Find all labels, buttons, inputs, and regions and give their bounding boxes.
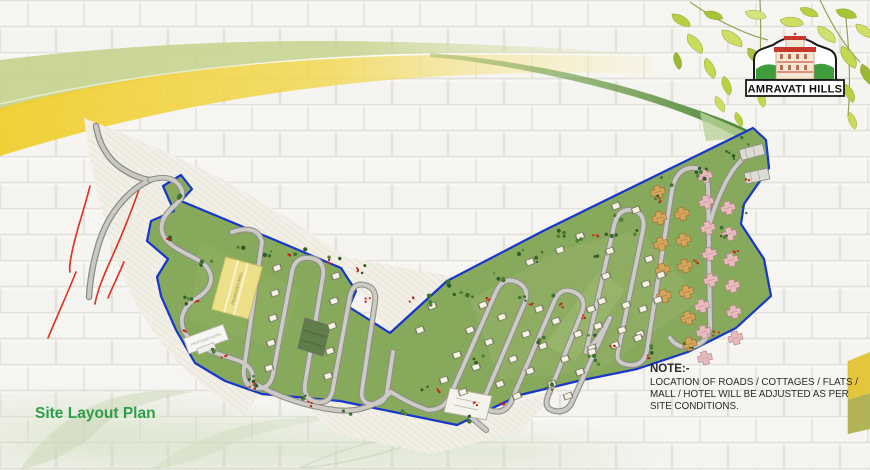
note-line: MALL / HOTEL WILL BE ADJUSTED AS PER [650,389,849,400]
site-layout-poster: PROPOSED MALL PROPOSED HOTEL [0,0,870,470]
note-line: SITE CONDITIONS. [650,401,739,412]
poster-canvas: PROPOSED MALL PROPOSED HOTEL [0,0,870,470]
logo-text: AMRAVATI HILLS [748,84,843,96]
note-line: LOCATION OF ROADS / COTTAGES / FLATS / [650,377,858,388]
right-ribbon [848,352,870,434]
note-title: NOTE:- [650,363,690,375]
page-title: Site Layout Plan [35,405,156,422]
